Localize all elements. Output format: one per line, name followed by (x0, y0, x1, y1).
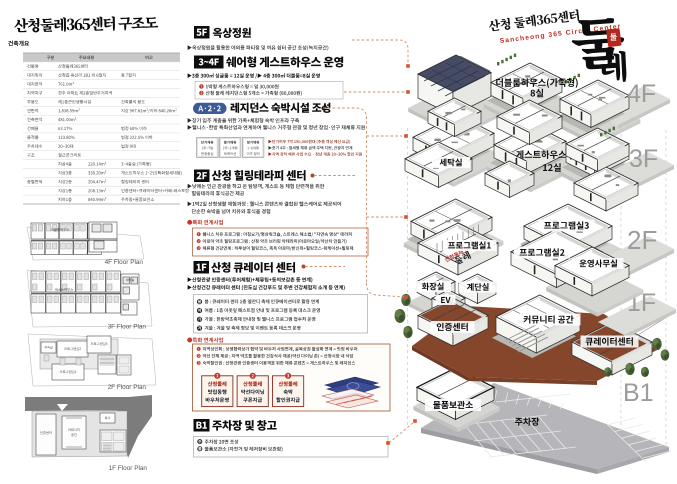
svg-text:3F: 3F (629, 145, 658, 173)
svg-text:2F: 2F (627, 225, 657, 255)
svg-text:1F Floor Plan: 1F Floor Plan (109, 465, 148, 472)
svg-text:4F Floor Plan: 4F Floor Plan (105, 259, 144, 266)
svg-text:4F: 4F (627, 80, 656, 108)
svg-text:2F Floor Plan: 2F Floor Plan (108, 384, 147, 391)
svg-text:B1: B1 (623, 379, 654, 407)
svg-text:3F Floor Plan: 3F Floor Plan (108, 324, 147, 331)
